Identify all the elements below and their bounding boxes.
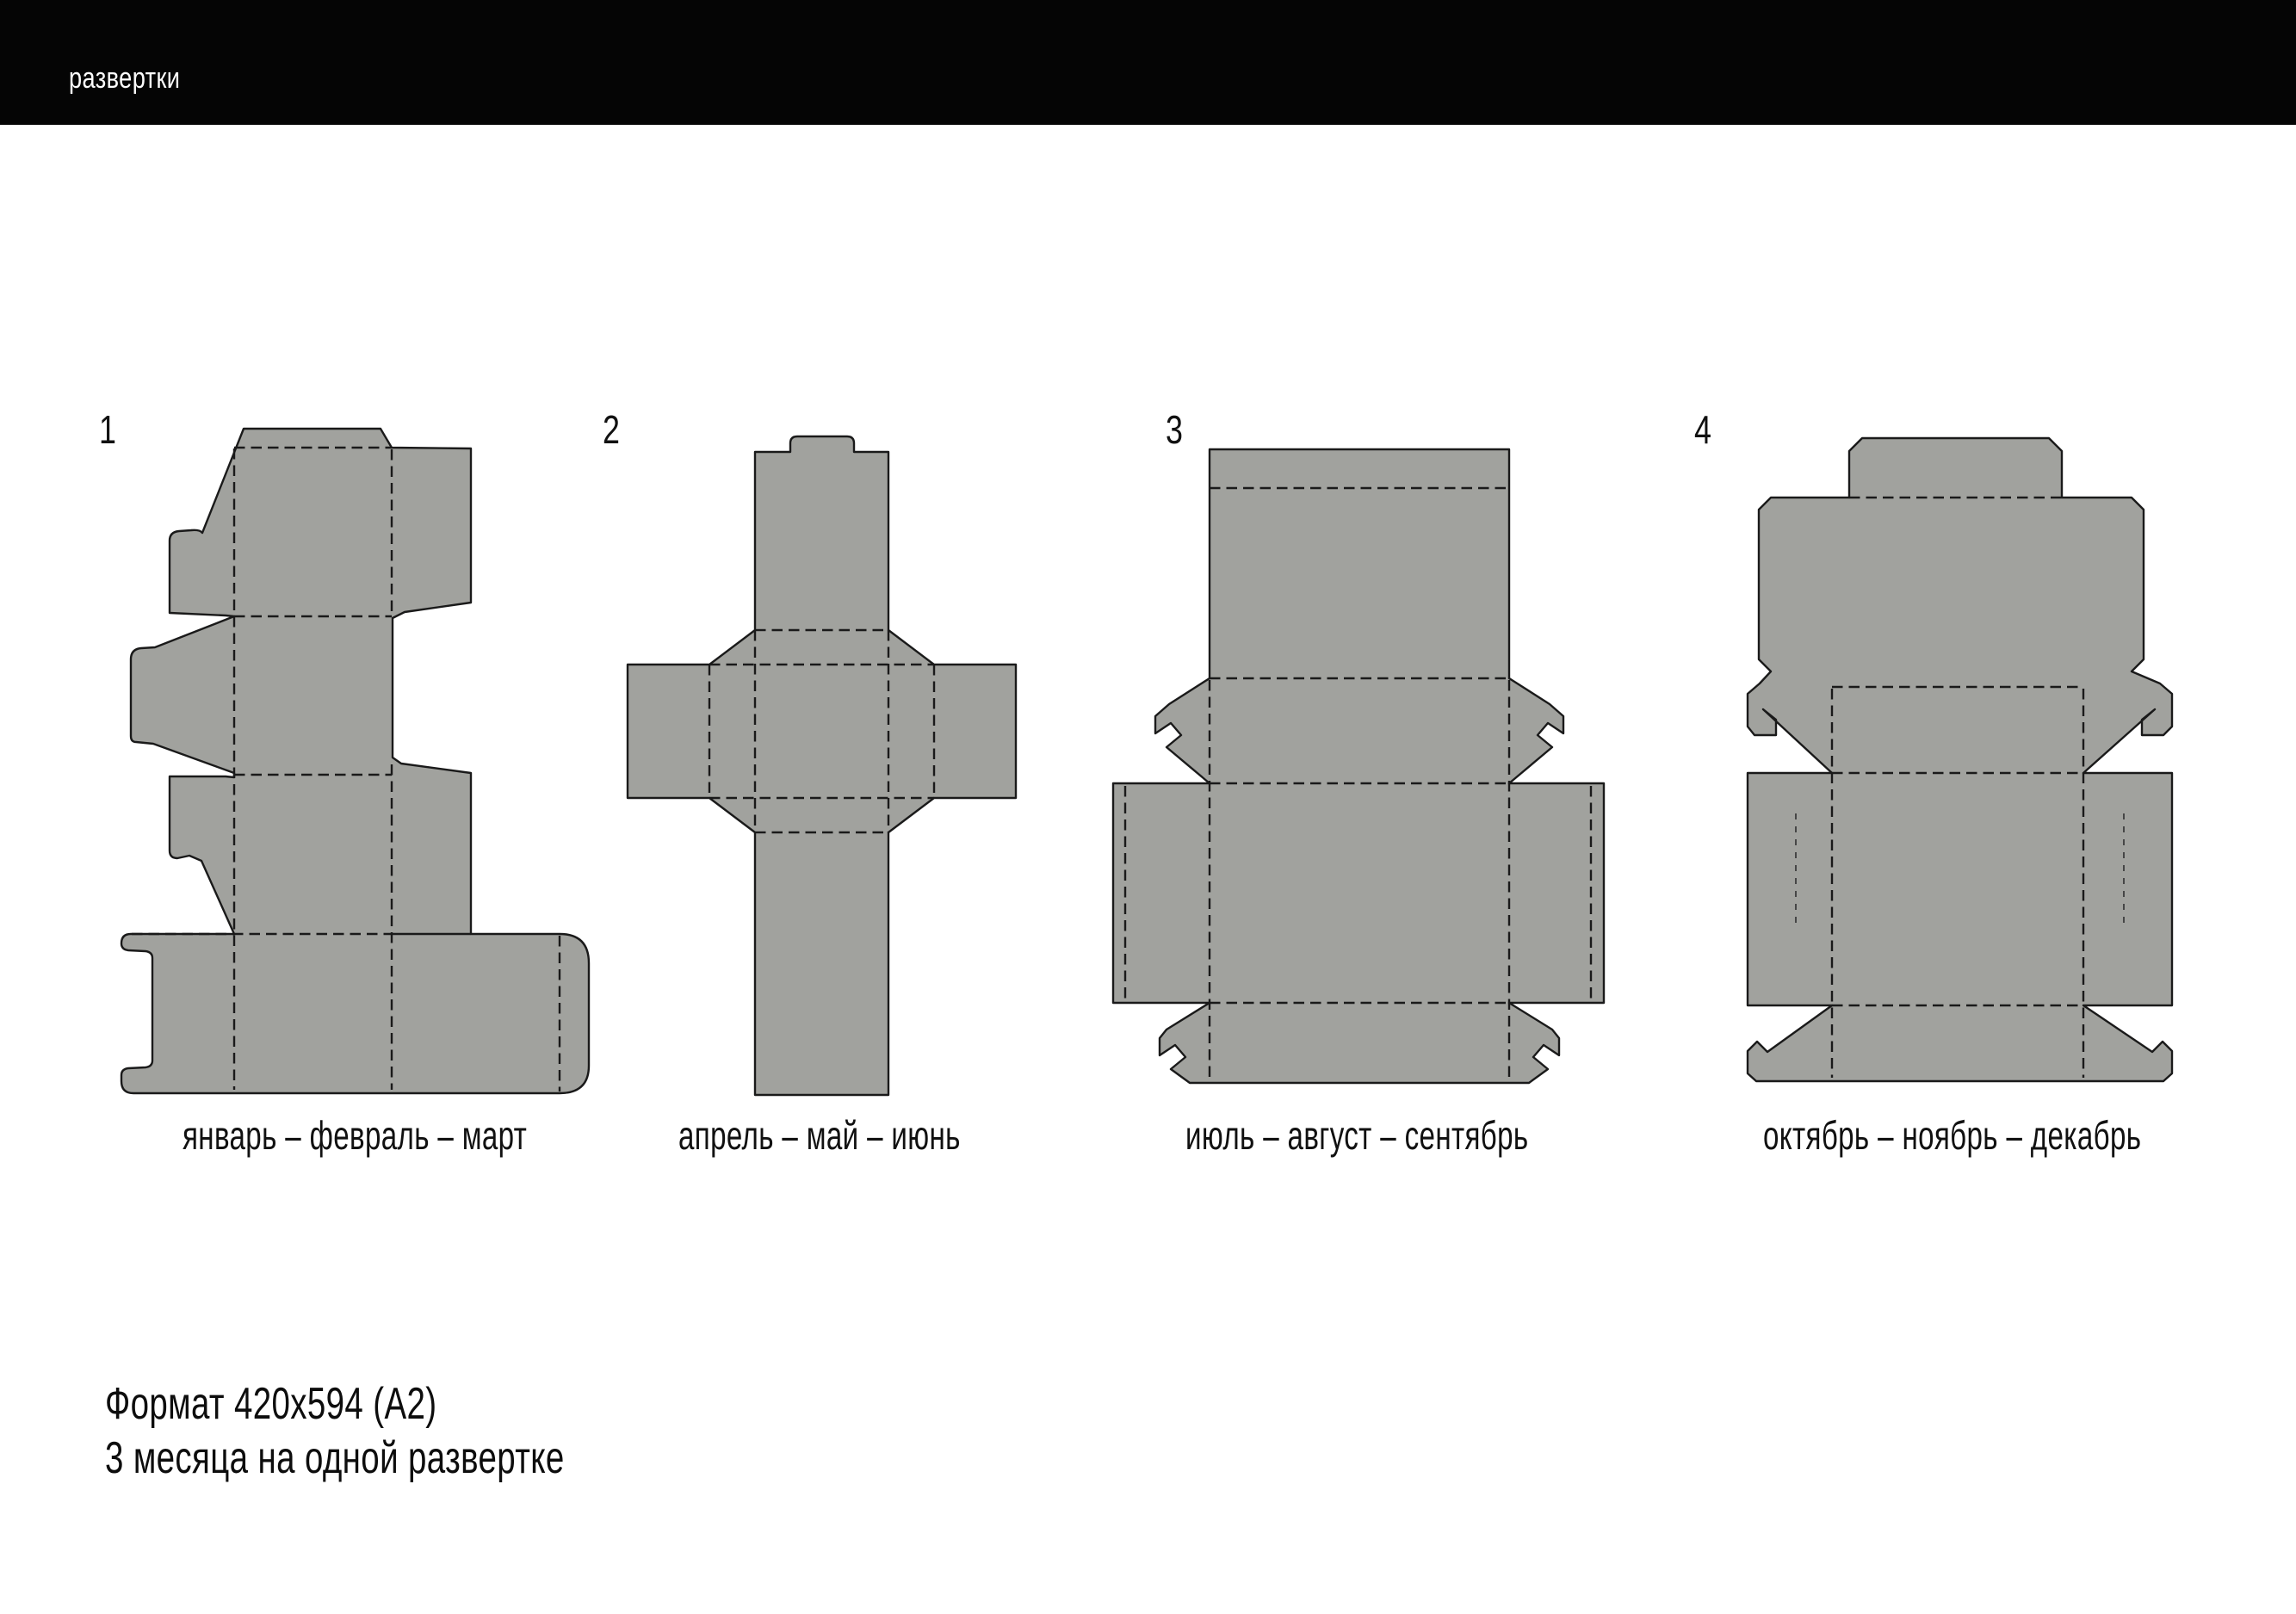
dieline-4-number: 4 (1694, 410, 1711, 449)
dieline-3-outline (1113, 449, 1604, 1083)
dieline-2 (628, 436, 1016, 1095)
format-note: Формат 420x594 (А2) 3 месяца на одной ра… (105, 1377, 565, 1486)
dieline-1-number: 1 (99, 410, 116, 449)
format-note-line2: 3 месяца на одной развертке (105, 1432, 565, 1486)
page: развертки (0, 0, 2296, 1614)
format-note-line1: Формат 420x594 (А2) (105, 1377, 565, 1432)
dieline-4-outline (1748, 438, 2172, 1081)
dieline-4 (1748, 438, 2172, 1081)
dieline-1-label: январь – февраль – март (183, 1116, 527, 1155)
dieline-2-number: 2 (603, 410, 620, 449)
dielines-canvas (0, 0, 2296, 1614)
dieline-2-label: апрель – май – июнь (678, 1116, 961, 1155)
dieline-3-label: июль – август – сентябрь (1185, 1116, 1529, 1155)
dieline-2-outline (628, 436, 1016, 1095)
dieline-1-outline (121, 429, 589, 1093)
dieline-4-label: октябрь – ноябрь – декабрь (1763, 1116, 2141, 1155)
dieline-3-number: 3 (1166, 410, 1183, 449)
dieline-3 (1113, 449, 1604, 1083)
dieline-1 (121, 429, 589, 1093)
